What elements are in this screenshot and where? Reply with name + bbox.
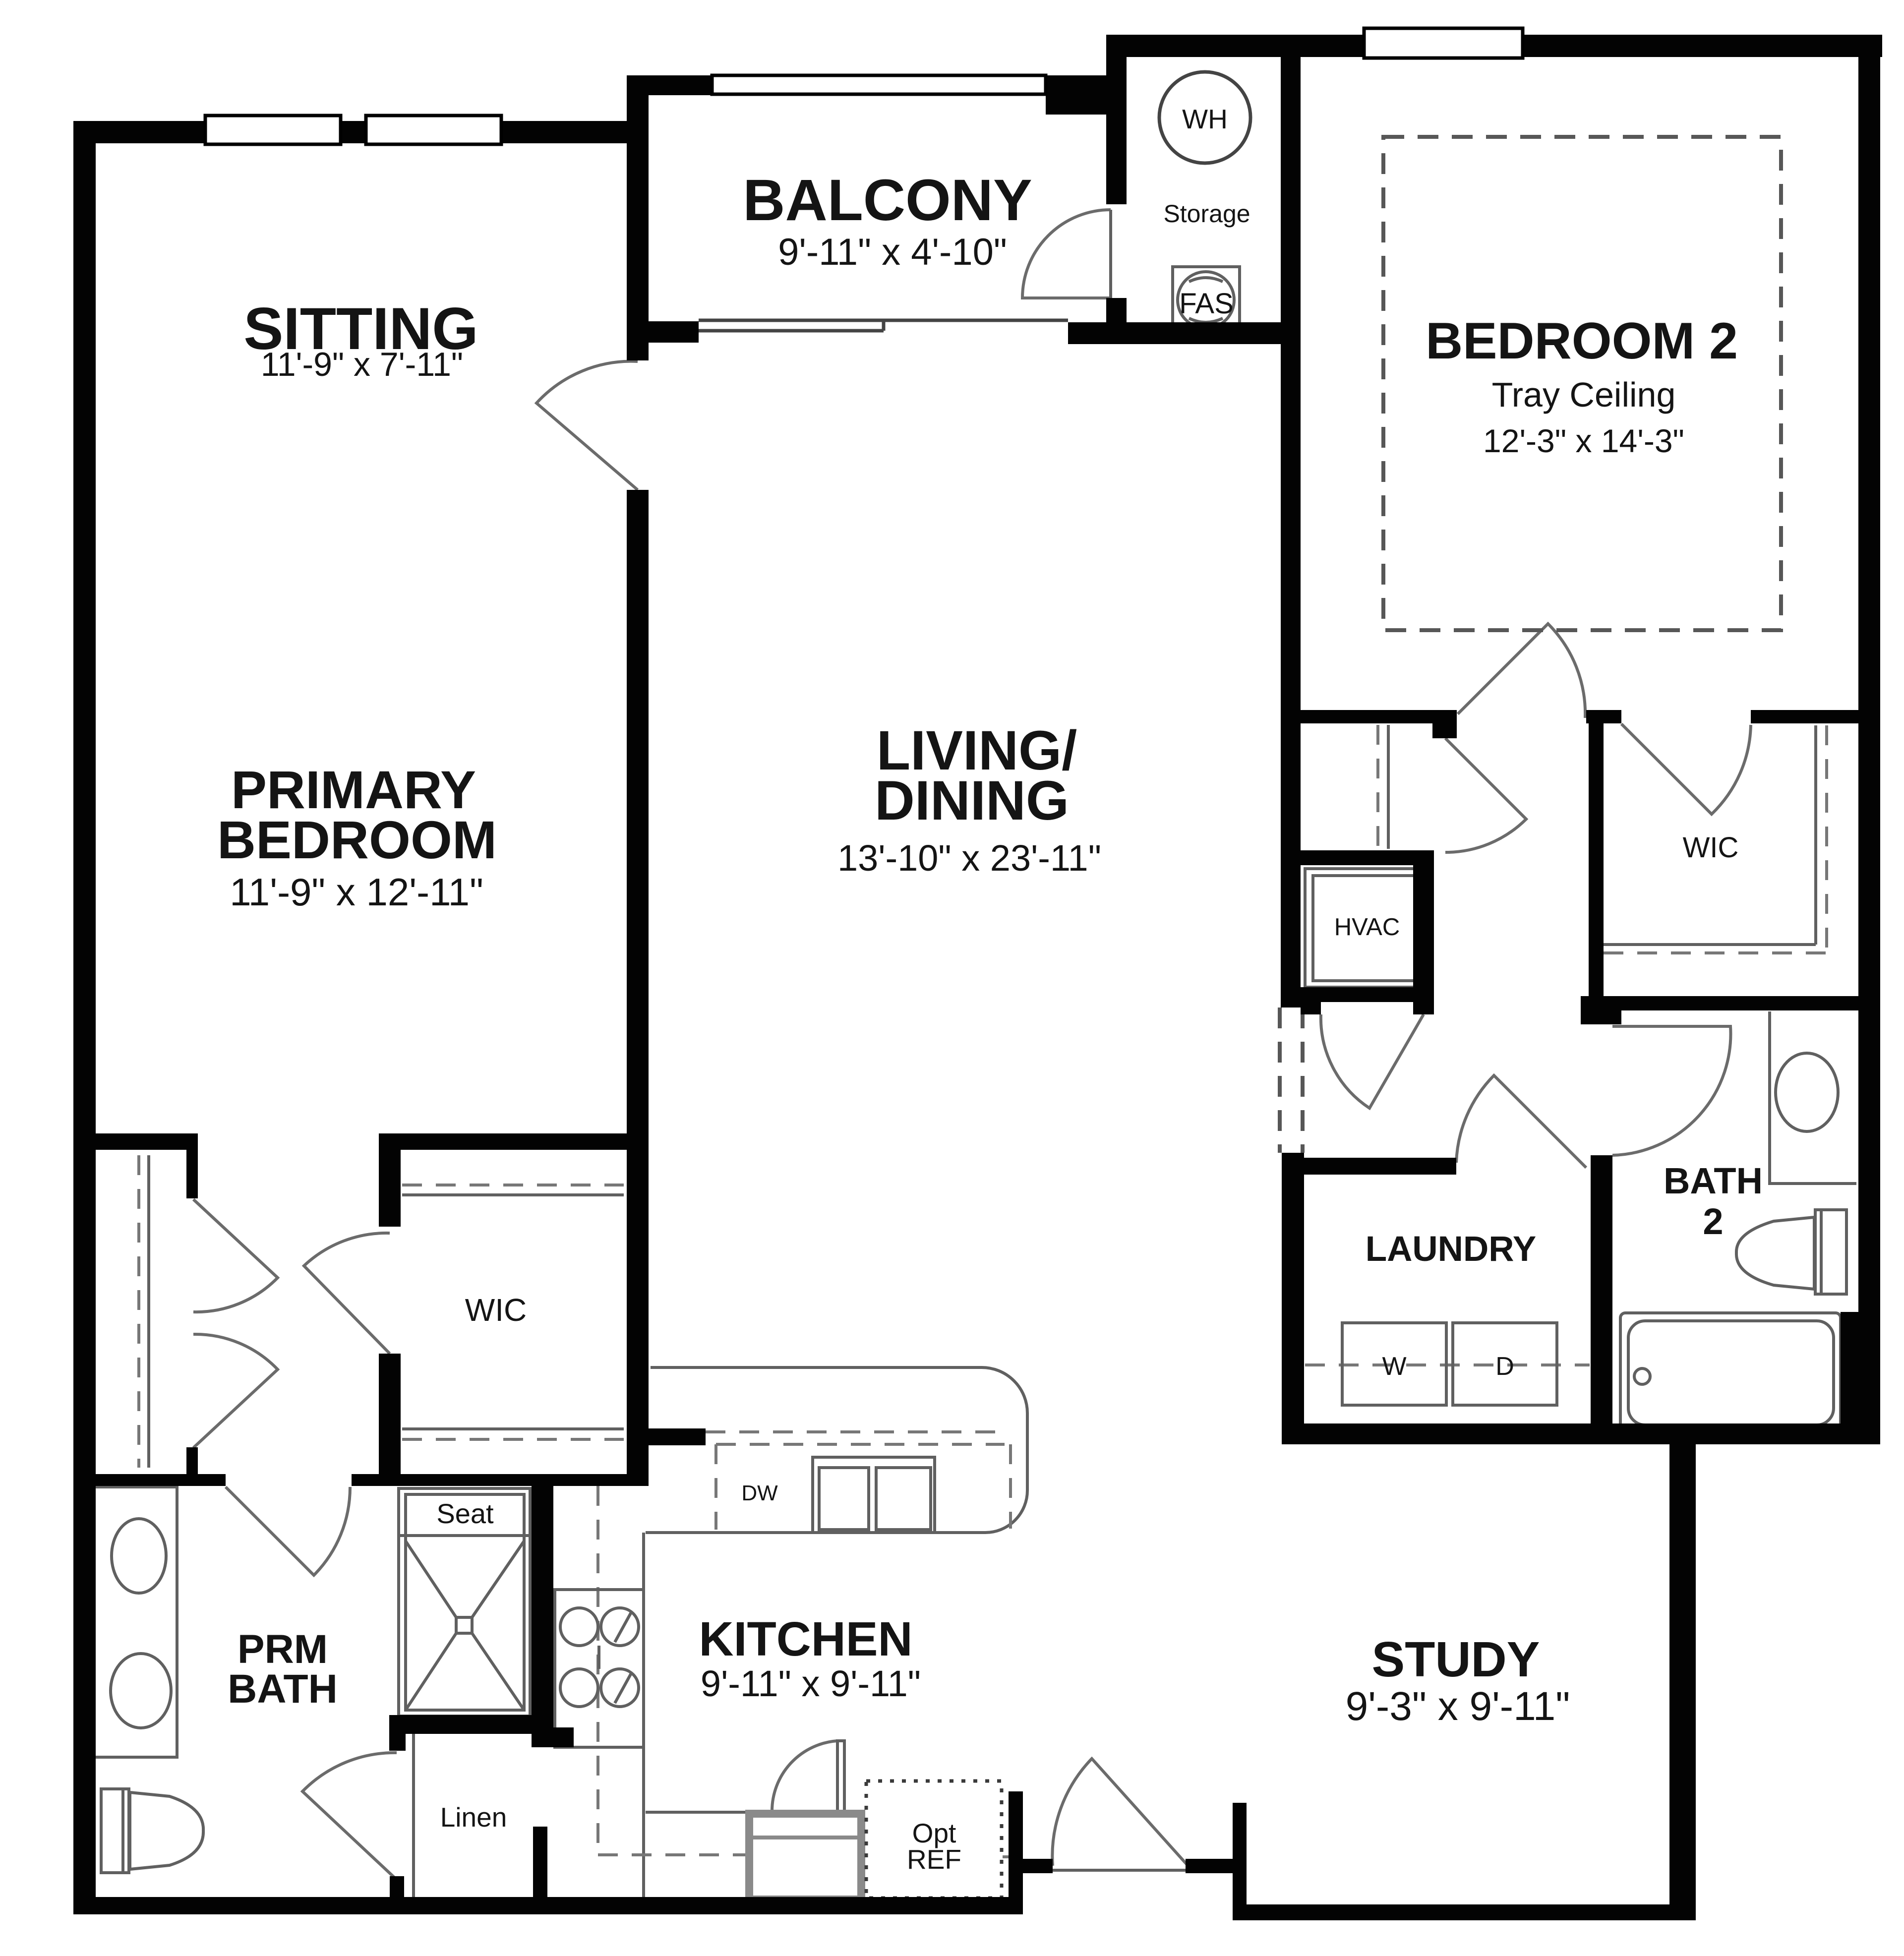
svg-text:WIC: WIC bbox=[1683, 831, 1739, 864]
svg-text:BATH: BATH bbox=[1664, 1160, 1763, 1201]
svg-text:BALCONY: BALCONY bbox=[743, 168, 1032, 233]
svg-text:2: 2 bbox=[1703, 1201, 1723, 1242]
svg-text:STUDY: STUDY bbox=[1372, 1632, 1540, 1687]
svg-text:Seat: Seat bbox=[436, 1498, 494, 1529]
svg-text:DW: DW bbox=[741, 1481, 778, 1505]
svg-text:REF: REF bbox=[907, 1844, 961, 1875]
svg-text:BEDROOM 2: BEDROOM 2 bbox=[1426, 312, 1738, 370]
svg-text:D: D bbox=[1495, 1352, 1514, 1381]
svg-text:Storage: Storage bbox=[1163, 200, 1250, 228]
svg-text:LAUNDRY: LAUNDRY bbox=[1366, 1230, 1536, 1269]
svg-text:BATH: BATH bbox=[228, 1666, 338, 1712]
svg-text:KITCHEN: KITCHEN bbox=[699, 1612, 912, 1666]
svg-text:12'-3" x 14'-3": 12'-3" x 14'-3" bbox=[1483, 422, 1684, 459]
svg-text:PRM: PRM bbox=[238, 1627, 328, 1672]
svg-text:11'-9" x 12'-11": 11'-9" x 12'-11" bbox=[230, 870, 483, 914]
svg-text:11'-9" x 7'-11": 11'-9" x 7'-11" bbox=[261, 346, 463, 383]
svg-text:HVAC: HVAC bbox=[1334, 914, 1400, 941]
svg-text:13'-10" x 23'-11": 13'-10" x 23'-11" bbox=[837, 837, 1101, 879]
svg-text:DINING: DINING bbox=[875, 770, 1069, 831]
svg-text:FAS: FAS bbox=[1179, 288, 1234, 320]
svg-text:Tray Ceiling: Tray Ceiling bbox=[1492, 375, 1676, 414]
svg-text:Linen: Linen bbox=[440, 1802, 507, 1833]
svg-text:WH: WH bbox=[1182, 104, 1228, 134]
svg-text:9'-3" x 9'-11": 9'-3" x 9'-11" bbox=[1346, 1684, 1570, 1729]
svg-text:BEDROOM: BEDROOM bbox=[217, 810, 497, 870]
svg-text:9'-11" x 9'-11": 9'-11" x 9'-11" bbox=[701, 1663, 921, 1704]
svg-text:WIC: WIC bbox=[465, 1292, 527, 1328]
svg-text:9'-11" x 4'-10": 9'-11" x 4'-10" bbox=[778, 231, 1007, 273]
svg-text:W: W bbox=[1382, 1352, 1406, 1381]
